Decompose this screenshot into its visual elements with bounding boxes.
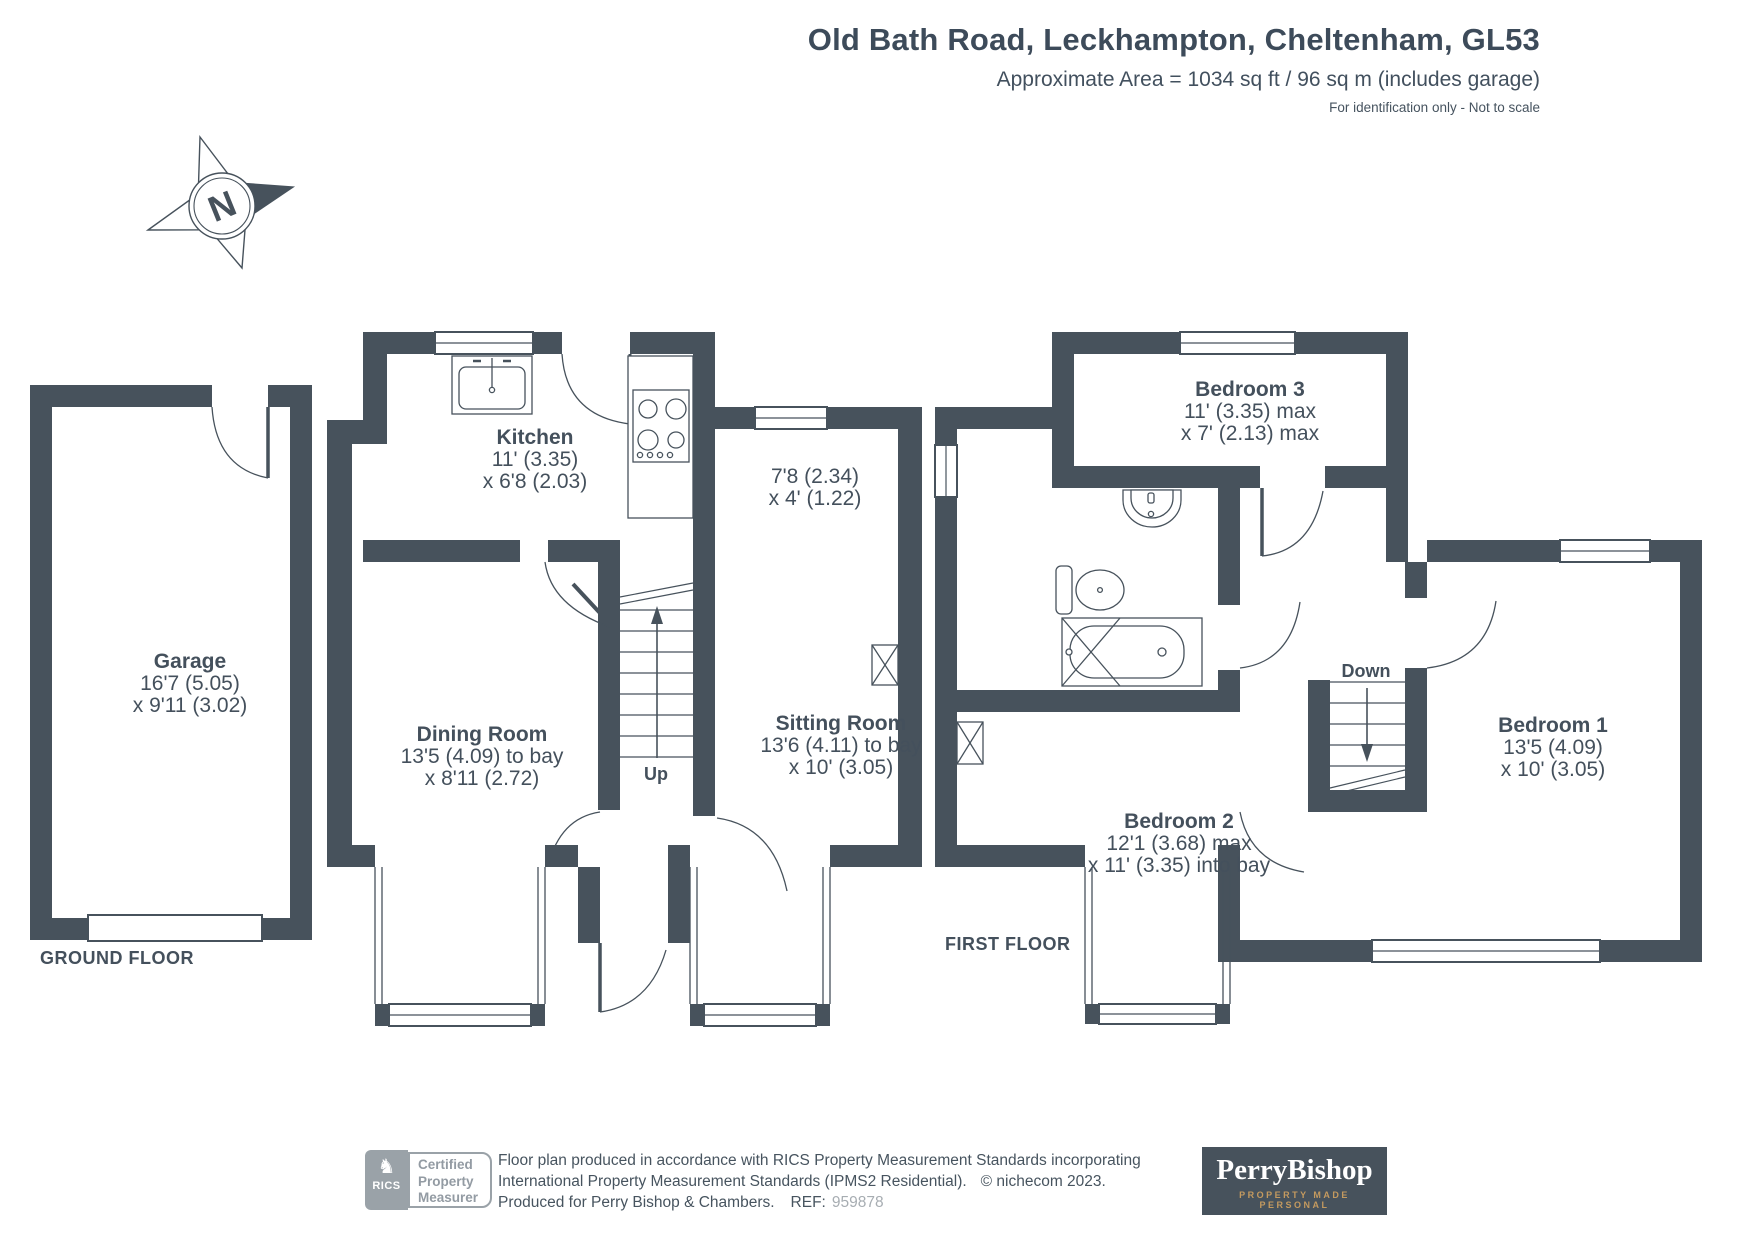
stairs-up-label: Up: [644, 764, 668, 785]
room-label-bedroom2: Bedroom 2 12'1 (3.68) max x 11' (3.35) i…: [1088, 811, 1270, 877]
certified-property-measurer-badge: Certified Property Measurer: [408, 1152, 492, 1208]
ref-value: 959878: [832, 1194, 884, 1211]
bathroom-basin: [1123, 490, 1181, 527]
bathroom-toilet: [1056, 566, 1124, 614]
stairs-down: [1330, 682, 1405, 795]
first-floor-label: FIRST FLOOR: [945, 934, 1071, 955]
copyright: © nichecom 2023.: [981, 1173, 1106, 1190]
room-label-hall: 7'8 (2.34) x 4' (1.22): [769, 466, 862, 510]
kitchen-sink: [452, 356, 532, 414]
room-label-dining: Dining Room 13'5 (4.09) to bay x 8'11 (2…: [401, 724, 564, 790]
perry-bishop-tagline: PROPERTY MADE PERSONAL: [1202, 1190, 1387, 1210]
stairs-down-label: Down: [1342, 661, 1391, 682]
room-label-sitting: Sitting Room 13'6 (4.11) to bay x 10' (3…: [760, 713, 921, 779]
room-label-bedroom1: Bedroom 1 13'5 (4.09) x 10' (3.05): [1498, 715, 1608, 781]
floorplan-page: N Old Bath Road, Leckhampton, Cheltenham…: [0, 0, 1755, 1241]
bathroom-bath: [1062, 618, 1202, 686]
stairs-up-arrowhead: [651, 606, 663, 624]
rics-brand: RICS: [365, 1180, 408, 1192]
header: Old Bath Road, Leckhampton, Cheltenham, …: [808, 22, 1540, 115]
doors: [212, 354, 1496, 1012]
rics-lion-icon: ♞: [365, 1154, 408, 1180]
rics-logo: ♞ RICS: [365, 1150, 408, 1210]
disclaimer-line2: International Property Measurement Stand…: [498, 1173, 967, 1190]
page-title: Old Bath Road, Leckhampton, Cheltenham, …: [808, 22, 1540, 58]
perry-bishop-name: PerryBishop: [1202, 1154, 1387, 1187]
area-subtitle: Approximate Area = 1034 sq ft / 96 sq m …: [808, 68, 1540, 92]
room-label-garage: Garage 16'7 (5.05) x 9'11 (3.02): [133, 651, 248, 717]
perry-bishop-logo: PerryBishop PROPERTY MADE PERSONAL: [1202, 1147, 1387, 1215]
walls: [30, 332, 1702, 1026]
ground-floor-label: GROUND FLOOR: [40, 948, 194, 969]
bay-window-sides: [375, 867, 1230, 1004]
room-label-kitchen: Kitchen 11' (3.35) x 6'8 (2.03): [483, 427, 587, 493]
scale-note: For identification only - Not to scale: [808, 100, 1540, 115]
ref-label: REF:: [791, 1194, 826, 1211]
floorplan-drawing: N: [0, 0, 1755, 1241]
disclaimer-line1: Floor plan produced in accordance with R…: [498, 1150, 1141, 1171]
footer-disclaimer: Floor plan produced in accordance with R…: [498, 1150, 1141, 1213]
room-label-bedroom3: Bedroom 3 11' (3.35) max x 7' (2.13) max: [1181, 379, 1319, 445]
stairs-down-arrowhead: [1361, 744, 1373, 762]
produced-for: Produced for Perry Bishop & Chambers.: [498, 1194, 775, 1211]
cooktop: [628, 356, 693, 518]
